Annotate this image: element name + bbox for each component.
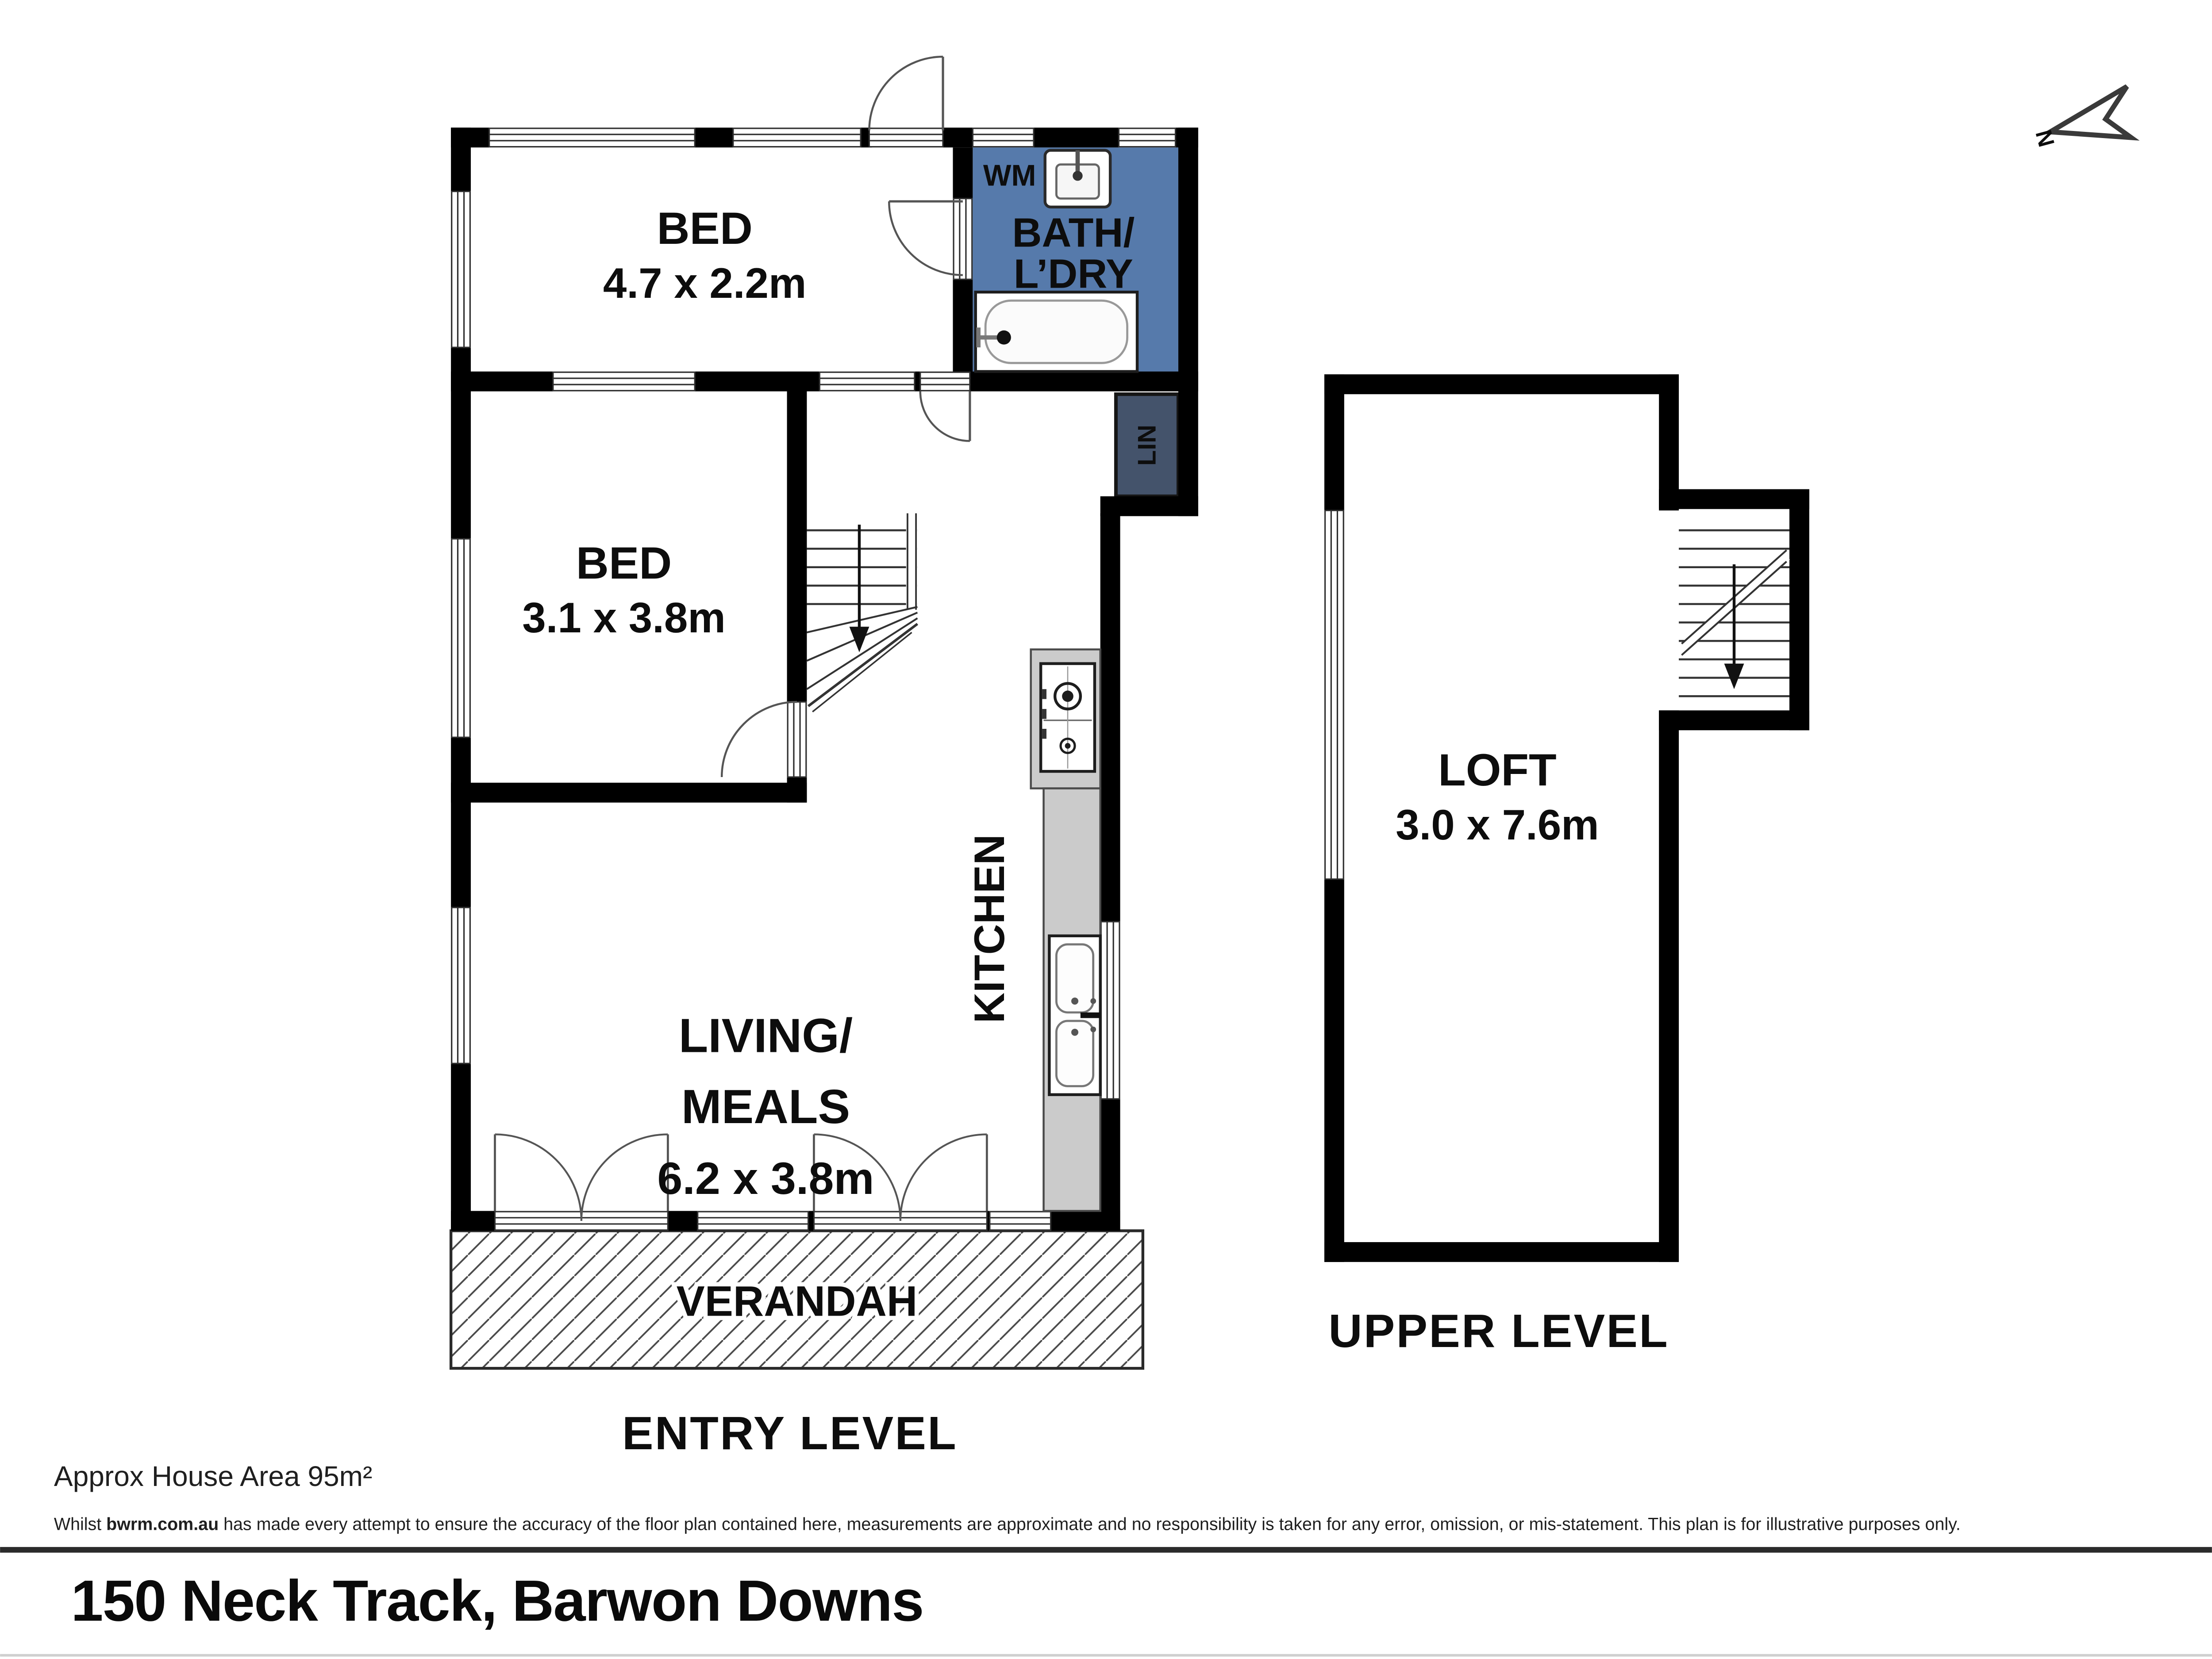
bed1-label: BED <box>657 203 752 254</box>
wall-segment <box>1659 710 1679 1262</box>
wall-segment <box>1100 496 1198 516</box>
living-meals-label-line2: MEALS <box>681 1080 850 1134</box>
entry-level-title: ENTRY LEVEL <box>622 1407 958 1459</box>
door-swing <box>920 391 970 441</box>
door-swing <box>869 57 943 131</box>
window <box>990 1212 1051 1230</box>
window <box>489 128 695 147</box>
linen-label: LIN <box>1133 425 1162 466</box>
area-note: Approx House Area 95m² <box>54 1460 372 1492</box>
disclaimer-brand: bwrm.com.au <box>106 1514 219 1534</box>
floorplan-image: BED 4.7 x 2.2m BED 3.1 x 3.8m BATH/ L’DR… <box>0 0 2212 1659</box>
wall-segment <box>668 1211 697 1231</box>
bed2-label: BED <box>576 537 672 588</box>
wall-segment <box>1659 710 1809 730</box>
stove-burner <box>1065 743 1071 749</box>
stove-knob <box>1042 729 1046 739</box>
wall-segment <box>787 372 807 702</box>
french-door-swing <box>581 1134 668 1220</box>
window <box>452 539 470 738</box>
living-meals-label-line1: LIVING/ <box>679 1009 853 1063</box>
window <box>452 192 470 347</box>
doorway <box>954 199 972 280</box>
wall-segment <box>1100 513 1120 922</box>
wall-segment <box>1324 374 1679 394</box>
footer: Approx House Area 95m² Whilst bwrm.com.a… <box>0 1460 2212 1656</box>
floorplan-page: BED 4.7 x 2.2m BED 3.1 x 3.8m BATH/ L’DR… <box>0 0 2212 1659</box>
wall-segment <box>953 147 973 198</box>
north-arrow-icon: N <box>2031 86 2131 149</box>
sink-drain <box>1071 997 1078 1005</box>
window <box>553 372 695 391</box>
bed2-dimensions: 3.1 x 3.8m <box>522 594 726 642</box>
door-swing <box>889 201 963 275</box>
wall-segment <box>1178 127 1198 516</box>
door-swing <box>722 702 797 777</box>
verandah-label: VERANDAH <box>677 1278 918 1325</box>
french-door-swing <box>900 1134 987 1220</box>
upper-level-title: UPPER LEVEL <box>1328 1305 1669 1357</box>
stove-knob <box>1042 689 1046 699</box>
disclaimer: Whilst bwrm.com.au has made every attemp… <box>54 1514 1961 1534</box>
upper-level-labels: LOFT 3.0 x 7.6m UPPER LEVEL <box>1328 744 1669 1357</box>
stair-arrow-head <box>850 627 869 652</box>
sink-drain <box>1071 1029 1078 1036</box>
wall-segment <box>953 279 973 371</box>
window <box>1325 511 1344 879</box>
window <box>698 1212 808 1230</box>
window <box>452 908 470 1063</box>
bath-sink-tap <box>1073 171 1082 181</box>
french-door-swing <box>495 1134 581 1220</box>
living-meals-dimensions: 6.2 x 3.8m <box>657 1153 874 1204</box>
bath-laundry-label-line2: L’DRY <box>1014 250 1133 296</box>
wall-segment <box>451 372 553 392</box>
divider-line <box>0 1547 2212 1553</box>
wall-segment <box>1659 489 1809 509</box>
wall-segment <box>1324 879 1344 1262</box>
sink-tap-handle <box>1090 1027 1096 1032</box>
wall-segment <box>451 1211 495 1231</box>
loft-label: LOFT <box>1438 744 1557 795</box>
window <box>733 128 861 147</box>
wall-segment <box>1324 1242 1679 1262</box>
wall-segment <box>1051 1211 1120 1231</box>
wall-segment <box>1789 489 1809 730</box>
wall-segment <box>451 127 471 191</box>
noop <box>1734 603 1785 650</box>
wall-segment <box>943 127 973 147</box>
address-title: 150 Neck Track, Barwon Downs <box>71 1568 923 1633</box>
kitchen-label: KITCHEN <box>966 834 1013 1023</box>
bath-laundry-label-line1: BATH/ <box>1012 210 1135 256</box>
stove-burner <box>1062 690 1073 702</box>
wall-segment <box>1324 374 1344 511</box>
window <box>973 128 1034 147</box>
window <box>1119 128 1175 147</box>
wall-segment <box>451 783 807 803</box>
stair-arrow-head <box>1724 664 1744 689</box>
window <box>819 372 915 391</box>
wall-segment <box>695 127 733 147</box>
bottom-edge-line <box>0 1654 2212 1657</box>
doorway <box>869 128 943 147</box>
sink-tap-handle <box>1090 998 1096 1004</box>
north-arrow-shape <box>2050 86 2131 137</box>
north-label: N <box>2031 127 2059 150</box>
wall-segment <box>808 1211 814 1231</box>
wall-segment <box>451 1063 471 1231</box>
stove-knob <box>1042 709 1046 719</box>
wall-segment <box>1034 127 1119 147</box>
bed1-dimensions: 4.7 x 2.2m <box>603 260 807 307</box>
wall-segment <box>915 372 920 392</box>
doorway <box>920 372 970 391</box>
bathtub-tap <box>997 331 1011 345</box>
wall-segment <box>970 372 1198 392</box>
doorway <box>788 702 806 777</box>
loft-dimensions: 3.0 x 7.6m <box>1396 801 1599 849</box>
washing-machine-label: WM <box>983 159 1036 192</box>
wall-segment <box>451 737 471 908</box>
window <box>1101 922 1119 1099</box>
